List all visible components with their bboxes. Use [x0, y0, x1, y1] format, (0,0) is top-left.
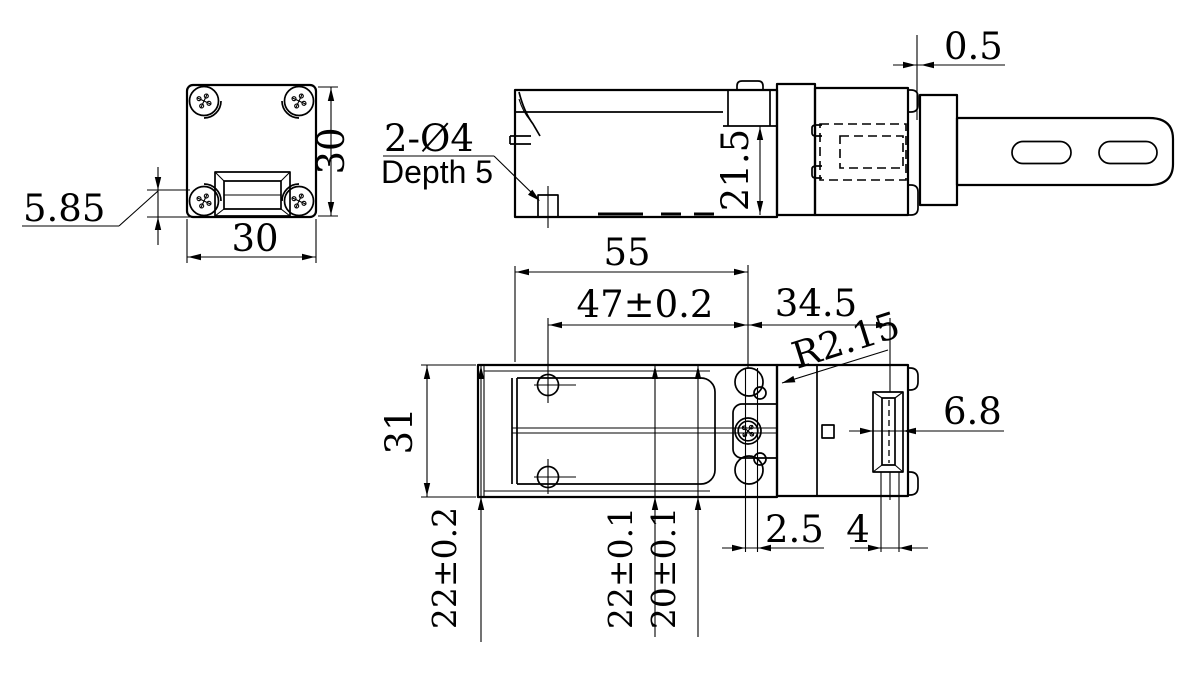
- hole-note: 2-Ø4 Depth 5: [381, 117, 540, 201]
- dimension-mount-pitch-left: 22±0.2: [425, 365, 484, 642]
- technical-drawing-page: 30 30 5.85: [0, 0, 1200, 673]
- top-view: 55 47±0.2 34.5 R2.15 31: [378, 231, 1004, 642]
- keyhole-slot: [735, 368, 766, 399]
- side-head: [815, 88, 908, 215]
- dim-front-bezel-label: 5.85: [23, 187, 105, 230]
- dimension-mount-pitch-right: 20±0.1: [644, 365, 701, 637]
- dimension-side-height: 21.5: [714, 126, 763, 215]
- dim-mount-pitch-left-label: 22±0.2: [425, 507, 464, 629]
- dimension-slot-width: 4: [846, 508, 928, 551]
- screw-icon: [285, 187, 314, 216]
- front-view: 30 30 5.85: [22, 85, 353, 263]
- dim-front-width-label: 30: [231, 217, 278, 260]
- side-flange: [777, 84, 815, 215]
- top-head-tab: [908, 368, 918, 390]
- cover-screw-hole: [534, 318, 576, 403]
- dim-body-width-label: 31: [378, 407, 421, 454]
- hole-note-line2: Depth 5: [381, 154, 493, 190]
- side-screw-boss: [723, 81, 777, 126]
- arm-slot: [1012, 142, 1071, 164]
- hidden-plunger-outer: [820, 124, 906, 180]
- limit-switch-drawing: 30 30 5.85: [0, 0, 1200, 673]
- dimension-slot-offset: 2.5: [722, 508, 824, 551]
- head-detail-square: [822, 425, 834, 438]
- dim-mount-pitch-right-label: 20±0.1: [644, 507, 683, 629]
- hidden-plunger-inner: [840, 136, 903, 168]
- plunger-end: [873, 392, 903, 472]
- arm-slot: [1099, 142, 1157, 164]
- dim-mount-pitch-mid-label: 22±0.1: [601, 507, 640, 629]
- dimension-front-bezel-height: 5.85: [22, 167, 190, 245]
- screw-icon: [285, 87, 314, 116]
- side-head-tab: [908, 185, 918, 215]
- dim-slot-offset-label: 2.5: [765, 508, 824, 551]
- dimension-body-width: 31: [378, 365, 476, 497]
- cover-screw-hole: [534, 459, 576, 494]
- side-view: 21.5 0.5 2-Ø4 Depth 5: [381, 25, 1173, 228]
- dimension-body-length: 55: [515, 231, 748, 275]
- dim-body-length-label: 55: [603, 231, 650, 274]
- dim-slot-width-label: 4: [846, 508, 870, 551]
- dim-hole-pitch-label: 47±0.2: [577, 283, 714, 326]
- dimension-front-width: 30: [187, 217, 316, 263]
- arm-hub: [920, 95, 957, 205]
- top-head-tab: [908, 472, 918, 495]
- dim-side-height-label: 21.5: [714, 129, 757, 211]
- dimension-hole-pitch: 47±0.2: [548, 283, 748, 328]
- dimension-lever-offset: 0.5: [893, 25, 1005, 120]
- dim-front-height-label: 30: [310, 127, 353, 174]
- dim-lever-offset-label: 0.5: [944, 25, 1003, 68]
- flange-pocket: [733, 404, 777, 458]
- screw-icon: [190, 87, 219, 116]
- lever-arm: [957, 118, 1173, 185]
- front-bezel: [215, 172, 290, 216]
- dim-plunger-width-label: 6.8: [943, 390, 1002, 433]
